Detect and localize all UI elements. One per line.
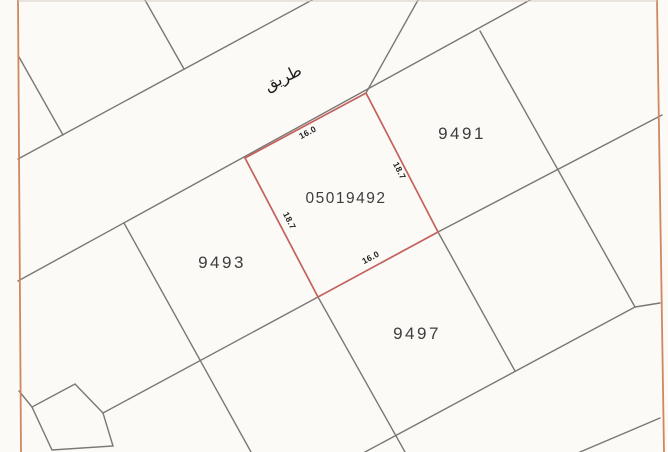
cadastral-map-page: طريق 9491 9493 9497 05019492 16.0 18.7 1… (0, 0, 668, 452)
parcel-label-9491: 9491 (438, 124, 486, 143)
map-background (0, 0, 668, 452)
parcel-label-9493: 9493 (198, 253, 246, 272)
cadastral-map: طريق 9491 9493 9497 05019492 16.0 18.7 1… (0, 0, 668, 452)
highlighted-parcel-label: 05019492 (306, 190, 387, 207)
parcel-label-9497: 9497 (393, 324, 441, 343)
